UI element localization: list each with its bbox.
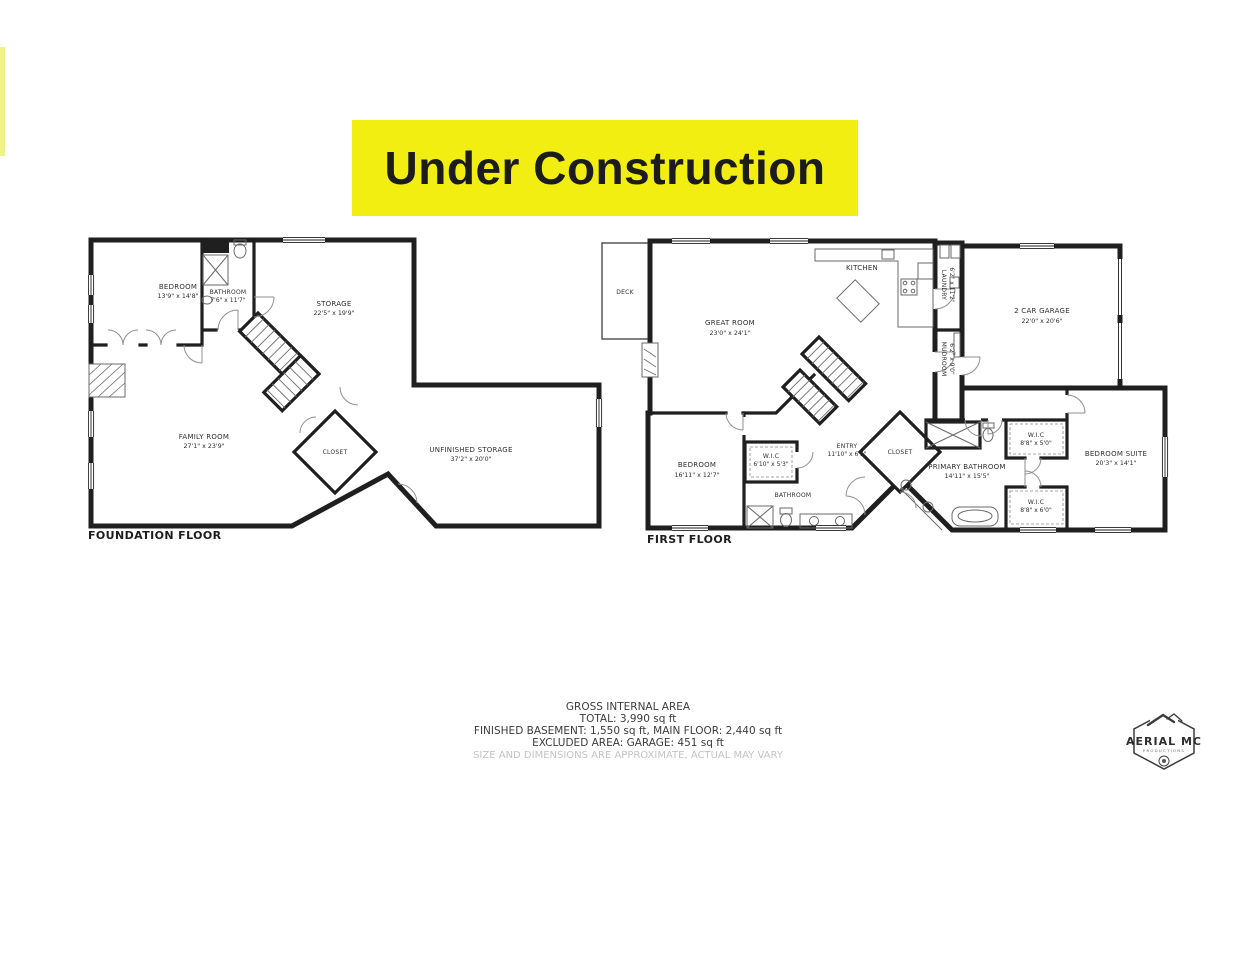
room-label-family-room: FAMILY ROOM: [179, 433, 229, 441]
kitchen-island: [837, 280, 879, 322]
room-dims-bedroom: 13'9" x 14'8": [157, 293, 198, 300]
exterior-stair-hatch: [89, 364, 125, 397]
logo-badge-icon: [1159, 756, 1169, 766]
summary-total: TOTAL: 3,990 sq ft: [448, 713, 808, 725]
aerial-mc-logo: AERIAL MC PRODUCTIONS: [1126, 709, 1202, 779]
room-dims-wic-bottom: 8'8" x 6'0": [1020, 507, 1052, 514]
room-label-primary-bathroom: PRIMARY BATHROOM: [928, 463, 1005, 471]
first-floor-plan: DECK GREAT ROOM 23'0" x 24'1" KITCHEN LA…: [600, 237, 1170, 537]
logo-sub-text: PRODUCTIONS: [1143, 748, 1185, 753]
summary-excluded: EXCLUDED AREA: GARAGE: 451 sq ft: [448, 737, 808, 749]
summary-breakdown: FINISHED BASEMENT: 1,550 sq ft, MAIN FLO…: [448, 725, 808, 737]
room-label-garage: 2 CAR GARAGE: [1014, 307, 1070, 315]
room-label-kitchen: KITCHEN: [846, 264, 878, 272]
room-label-great-room: GREAT ROOM: [705, 319, 755, 327]
room-dims-wic-top: 8'8" x 5'0": [1020, 440, 1052, 447]
area-summary: GROSS INTERNAL AREA TOTAL: 3,990 sq ft F…: [448, 701, 808, 762]
under-construction-banner: Under Construction: [352, 120, 858, 216]
room-label-wic-bottom: W.I.C: [1028, 499, 1044, 506]
left-edge-yellow-stripe: [0, 47, 5, 156]
room-dims-great-room: 23'0" x 24'1": [709, 330, 750, 337]
bathroom-fixtures: [747, 506, 852, 528]
first-floor-stairs: [783, 337, 866, 424]
room-dims-entry: 11'10" x 6'5": [827, 451, 866, 458]
logo-brand-text: AERIAL MC: [1126, 735, 1202, 748]
room-label-laundry: LAUNDRY: [940, 270, 947, 300]
floor-plan-sheet: Under Construction: [0, 0, 1236, 960]
first-floor-caption: FIRST FLOOR: [647, 533, 732, 546]
basement-stairs: [240, 313, 319, 411]
room-dims-bedroom-suite: 20'3" x 14'1": [1095, 460, 1136, 467]
room-label-bedroom: BEDROOM: [159, 283, 197, 291]
room-label-unfinished-storage: UNFINISHED STORAGE: [429, 446, 512, 454]
room-dims-laundry: 6'2" x 11'2": [948, 267, 955, 303]
room-label-closet2: CLOSET: [888, 449, 913, 456]
room-label-bedroom2: BEDROOM: [678, 461, 716, 469]
room-dims-garage: 22'0" x 20'6": [1021, 318, 1062, 325]
room-dims-primary-bathroom: 14'11" x 15'5": [944, 473, 989, 480]
room-label-deck: DECK: [616, 289, 634, 296]
foundation-floor-plan: BEDROOM 13'9" x 14'8" BATHROOM 7'6" x 11…: [88, 237, 620, 537]
room-label-storage: STORAGE: [316, 300, 351, 308]
room-dims-storage: 22'5" x 19'9": [313, 310, 354, 317]
room-label-bathroom2: BATHROOM: [775, 492, 812, 499]
room-dims-family-room: 27'1" x 23'9": [183, 443, 224, 450]
room-dims-bedroom2: 16'11" x 12'7": [674, 472, 719, 479]
kitchen-fixtures: [815, 249, 933, 327]
room-label-bathroom: BATHROOM: [210, 289, 247, 296]
room-label-closet: CLOSET: [323, 449, 348, 456]
room-label-bedroom-suite: BEDROOM SUITE: [1085, 450, 1147, 458]
room-dims-wic-small: 6'10" x 5'3": [753, 461, 789, 468]
room-label-wic-top: W.I.C: [1028, 432, 1044, 439]
room-label-wic-small: W.I.C: [763, 453, 779, 460]
summary-disclaimer: SIZE AND DIMENSIONS ARE APPROXIMATE, ACT…: [448, 750, 808, 762]
room-label-mudroom: MUDROOM: [940, 342, 947, 377]
great-room-fireplace: [642, 343, 658, 377]
room-dims-bathroom: 7'6" x 11'7": [210, 297, 246, 304]
summary-title: GROSS INTERNAL AREA: [448, 701, 808, 713]
chimney: [201, 238, 229, 253]
room-dims-unfinished-storage: 37'2" x 20'0": [450, 456, 491, 463]
room-label-entry: ENTRY: [837, 443, 858, 450]
room-dims-mudroom: 6'2" x 9'0": [948, 343, 955, 375]
foundation-floor-caption: FOUNDATION FLOOR: [88, 529, 221, 542]
